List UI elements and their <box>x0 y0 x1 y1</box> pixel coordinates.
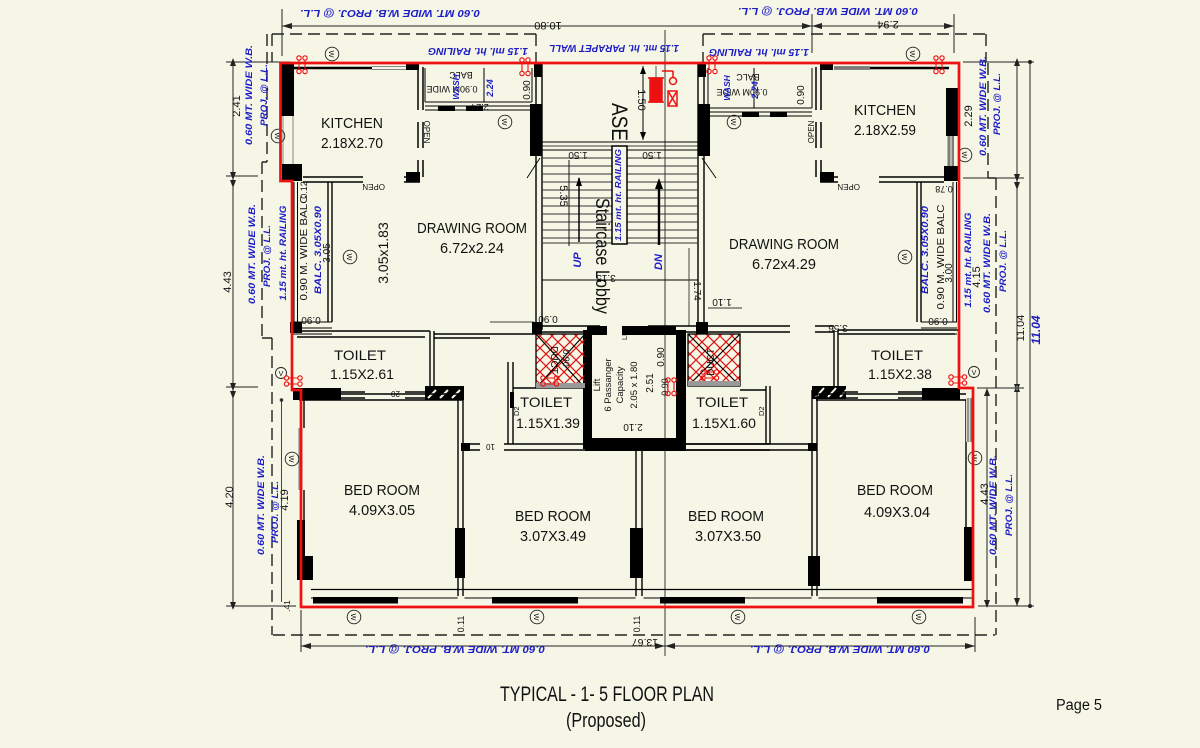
svg-text:1.74: 1.74 <box>691 281 702 301</box>
svg-text:11.04: 11.04 <box>1015 315 1027 342</box>
svg-text:0.78: 0.78 <box>935 184 953 194</box>
svg-text:0.60 MT. WIDE W.B. PROJ. @ L.L: 0.60 MT. WIDE W.B. PROJ. @ L.L. <box>738 5 918 17</box>
svg-text:BED ROOM: BED ROOM <box>857 482 933 499</box>
svg-text:BED ROOM: BED ROOM <box>344 482 420 499</box>
svg-text:TOILET: TOILET <box>520 394 572 410</box>
svg-text:1.15X2.61: 1.15X2.61 <box>330 366 394 382</box>
svg-text:1.15 mt. ht. RAILING: 1.15 mt. ht. RAILING <box>613 149 623 241</box>
svg-text:2.24: 2.24 <box>471 102 489 112</box>
svg-text:0.90: 0.90 <box>561 349 571 367</box>
svg-text:2.10: 2.10 <box>623 421 643 432</box>
svg-text:5.35: 5.35 <box>557 185 569 206</box>
svg-text:13.67: 13.67 <box>632 636 658 648</box>
svg-text:3.07X3.49: 3.07X3.49 <box>520 528 586 545</box>
svg-text:BED ROOM: BED ROOM <box>515 508 591 525</box>
svg-text:2.18X2.70: 2.18X2.70 <box>321 135 383 152</box>
svg-text:0.11: 0.11 <box>456 616 466 633</box>
svg-text:1.10: 1.10 <box>712 296 732 307</box>
svg-text:4.09X3.04: 4.09X3.04 <box>864 504 930 521</box>
svg-text:10.80: 10.80 <box>534 19 562 31</box>
svg-text:0.90: 0.90 <box>796 85 807 105</box>
svg-text:2.18X2.59: 2.18X2.59 <box>854 122 916 139</box>
svg-text:KITCHEN: KITCHEN <box>854 102 916 119</box>
svg-text:2.41: 2.41 <box>231 95 243 116</box>
svg-text:1.50: 1.50 <box>568 149 588 160</box>
svg-text:Staircase Lobby: Staircase Lobby <box>591 198 612 314</box>
svg-text:.41: .41 <box>282 600 292 612</box>
svg-text:10: 10 <box>486 442 495 451</box>
svg-text:PROJ. @ L.L.: PROJ. @ L.L. <box>998 230 1009 292</box>
svg-text:4.20: 4.20 <box>224 486 236 507</box>
svg-text:0.60 MT. WIDE W.B. PROJ. @ L.L: 0.60 MT. WIDE W.B. PROJ. @ L.L. <box>750 643 930 655</box>
svg-text:6.72x2.24: 6.72x2.24 <box>440 240 504 257</box>
svg-text:ASE: ASE <box>607 103 632 141</box>
svg-text:2.51: 2.51 <box>645 373 656 393</box>
svg-text:Page 5: Page 5 <box>1056 697 1102 714</box>
svg-text:Capacity: Capacity <box>615 366 626 403</box>
svg-text:0.60 MT. WIDE W.B.: 0.60 MT. WIDE W.B. <box>244 45 255 145</box>
svg-text:1.15X1.39: 1.15X1.39 <box>516 415 580 431</box>
svg-text:11.04: 11.04 <box>1029 315 1043 344</box>
svg-text:WASH: WASH <box>451 73 461 99</box>
svg-text:0.90: 0.90 <box>656 347 667 367</box>
svg-text:0.60 MT. WIDE W.B. PROJ. @ L.L: 0.60 MT. WIDE W.B. PROJ. @ L.L. <box>365 643 545 655</box>
svg-text:0.60 MT. WIDE W.B. PROJ. @ L.L: 0.60 MT. WIDE W.B. PROJ. @ L.L. <box>300 7 480 19</box>
svg-text:WASH: WASH <box>722 74 732 100</box>
svg-text:3.00: 3.00 <box>944 263 955 283</box>
svg-text:TOILET: TOILET <box>871 347 923 363</box>
svg-text:1.15X1.60: 1.15X1.60 <box>692 415 756 431</box>
svg-text:DUCT: DUCT <box>548 346 559 374</box>
svg-text:1.15 mt. ht. PARAPET WALL: 1.15 mt. ht. PARAPET WALL <box>549 42 679 53</box>
svg-text:1.50: 1.50 <box>635 89 647 110</box>
svg-text:0.90 M. WIDE BALC: 0.90 M. WIDE BALC <box>935 204 947 309</box>
svg-text:PROJ. @ L.L.: PROJ. @ L.L. <box>1004 474 1015 536</box>
svg-text:OPEN: OPEN <box>422 121 431 144</box>
svg-text:0.90: 0.90 <box>928 315 948 326</box>
svg-text:1.15 ml. ht. RAILING: 1.15 ml. ht. RAILING <box>428 45 528 56</box>
svg-text:UP: UP <box>572 252 584 268</box>
svg-text:0.60 MT. WIDE W.B.: 0.60 MT. WIDE W.B. <box>247 204 258 304</box>
svg-text:6.72x4.29: 6.72x4.29 <box>752 256 816 273</box>
svg-text:4.43: 4.43 <box>222 271 234 292</box>
svg-text:TYPICAL - 1- 5 FLOOR PLAN: TYPICAL - 1- 5 FLOOR PLAN <box>500 683 714 706</box>
svg-text:1.15 mt. ht. RAILING: 1.15 mt. ht. RAILING <box>963 212 974 308</box>
svg-text:1.15X2.38: 1.15X2.38 <box>868 366 932 382</box>
svg-text:OPEN: OPEN <box>837 182 860 191</box>
svg-text:6 Passanger: 6 Passanger <box>603 358 614 411</box>
svg-text:KITCHEN: KITCHEN <box>321 115 383 132</box>
svg-text:2.29: 2.29 <box>963 105 975 126</box>
svg-text:2.24: 2.24 <box>485 79 495 98</box>
svg-text:0.60 MT. WIDE W.B.: 0.60 MT. WIDE W.B. <box>982 213 993 313</box>
svg-text:3.05x1.83: 3.05x1.83 <box>375 222 391 284</box>
svg-text:0.60 MT. WIDE W.B.: 0.60 MT. WIDE W.B. <box>978 56 989 156</box>
svg-text:1.50: 1.50 <box>642 149 662 160</box>
svg-text:BED ROOM: BED ROOM <box>688 508 764 525</box>
svg-text:0.11: 0.11 <box>632 616 642 633</box>
svg-text:PROJ. @ L.L.: PROJ. @ L.L. <box>262 225 273 287</box>
svg-text:BALC: BALC <box>736 72 760 82</box>
svg-text:1.15 mt. ht. RAILING: 1.15 mt. ht. RAILING <box>278 205 289 301</box>
svg-text:0.90: 0.90 <box>522 80 533 100</box>
svg-text:0.60 MT. WIDE W.B.: 0.60 MT. WIDE W.B. <box>988 455 999 555</box>
svg-text:TOILET: TOILET <box>696 394 748 410</box>
svg-text:OPEN: OPEN <box>362 182 385 191</box>
svg-text:(Proposed): (Proposed) <box>566 710 646 732</box>
svg-text:2.94: 2.94 <box>877 18 898 30</box>
svg-text:3.05: 3.05 <box>322 243 333 263</box>
svg-text:BALC. 3.05X0.90: BALC. 3.05X0.90 <box>920 205 931 294</box>
svg-text:DRAWING ROOM: DRAWING ROOM <box>417 220 527 237</box>
svg-text:PROJ. @ L.L.: PROJ. @ L.L. <box>259 64 270 126</box>
svg-text:4.09X3.05: 4.09X3.05 <box>349 502 415 519</box>
svg-text:0.60 MT. WIDE W.B.: 0.60 MT. WIDE W.B. <box>256 455 267 555</box>
svg-text:3.07X3.50: 3.07X3.50 <box>695 528 761 545</box>
svg-text:4.19: 4.19 <box>279 489 291 510</box>
svg-text:1.15 ml. ht. RAILING: 1.15 ml. ht. RAILING <box>709 46 809 57</box>
svg-text:D2: D2 <box>757 406 766 416</box>
svg-text:PROJ. @ L.L.: PROJ. @ L.L. <box>992 73 1003 135</box>
svg-text:DN: DN <box>653 253 665 270</box>
svg-text:2.24: 2.24 <box>750 81 760 100</box>
svg-text:3.15: 3.15 <box>596 272 616 283</box>
svg-text:Lift: Lift <box>592 378 603 391</box>
svg-text:2.05 x 1.80: 2.05 x 1.80 <box>629 361 640 408</box>
svg-text:0.90 M. WIDE BALC: 0.90 M. WIDE BALC <box>298 195 310 300</box>
svg-text:OPEN: OPEN <box>807 120 816 143</box>
svg-text:DRAWING ROOM: DRAWING ROOM <box>729 236 839 253</box>
svg-text:TOILET: TOILET <box>334 347 386 363</box>
svg-text:0.90: 0.90 <box>301 314 321 325</box>
